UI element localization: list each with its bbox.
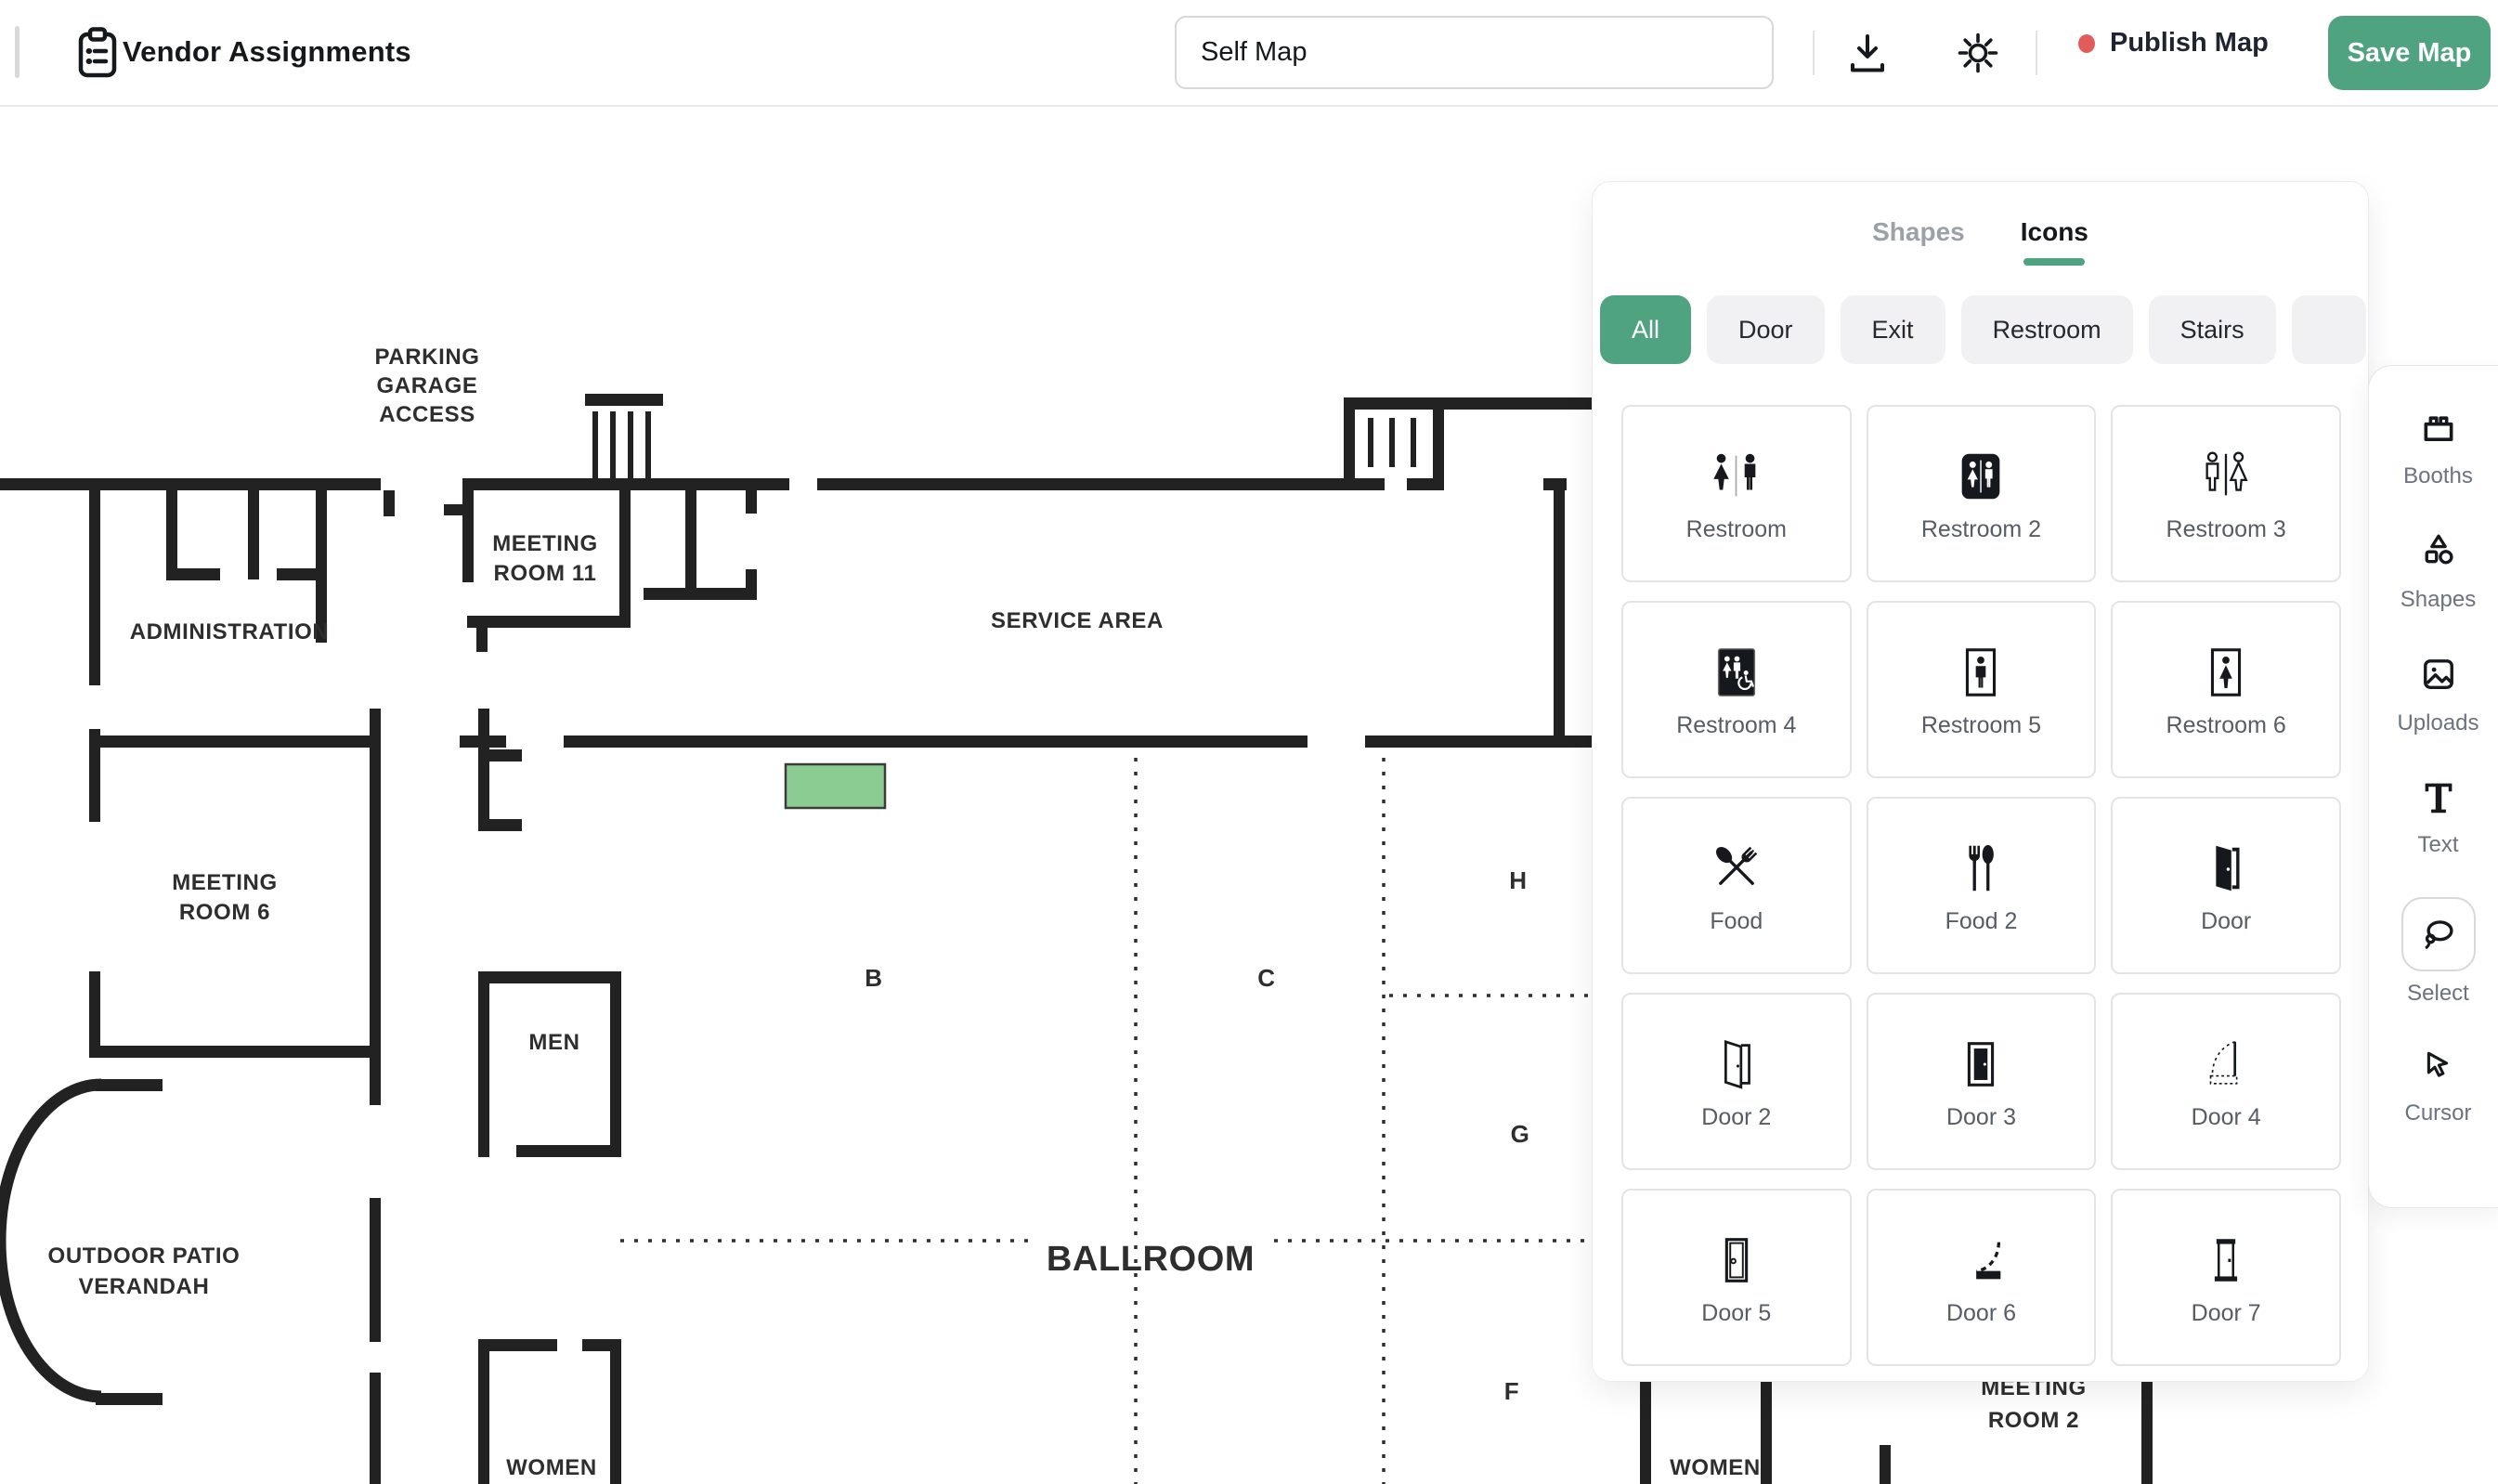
svg-text:C: C bbox=[1257, 964, 1275, 992]
icon-card-food[interactable]: Food bbox=[1621, 797, 1852, 974]
download-button[interactable] bbox=[1842, 28, 1893, 78]
svg-text:ADMINISTRATION: ADMINISTRATION bbox=[130, 619, 330, 644]
icon-card-restroom[interactable]: Restroom bbox=[1621, 405, 1852, 582]
restroom-5-icon bbox=[1952, 616, 2010, 701]
icon-card-restroom-2[interactable]: Restroom 2 bbox=[1867, 405, 2097, 582]
icon-card-food-2[interactable]: Food 2 bbox=[1867, 797, 2097, 974]
svg-text:ROOM 11: ROOM 11 bbox=[494, 561, 597, 586]
door-5-icon bbox=[1708, 1204, 1765, 1289]
filter-chip-restroom[interactable]: Restroom bbox=[1961, 295, 2133, 364]
svg-text:B: B bbox=[865, 964, 882, 992]
svg-text:WOMEN: WOMEN bbox=[506, 1455, 597, 1480]
tab-icons[interactable]: Icons bbox=[2021, 217, 2088, 266]
door-7-icon bbox=[2197, 1204, 2255, 1289]
lasso-select-icon bbox=[2416, 912, 2461, 957]
icon-card-door-6[interactable]: Door 6 bbox=[1867, 1189, 2097, 1366]
door-4-icon bbox=[2197, 1008, 2255, 1093]
page-title: Vendor Assignments bbox=[123, 35, 411, 69]
svg-text:WOMEN: WOMEN bbox=[1670, 1455, 1761, 1480]
download-icon bbox=[1847, 32, 1888, 74]
booth-rect[interactable] bbox=[786, 764, 885, 808]
svg-text:SERVICE AREA: SERVICE AREA bbox=[991, 608, 1164, 633]
svg-text:MEETING: MEETING bbox=[172, 870, 278, 895]
door-6-icon bbox=[1952, 1204, 2010, 1289]
text-icon bbox=[2417, 775, 2460, 823]
restroom-icon bbox=[1708, 420, 1765, 505]
restroom-3-icon bbox=[2197, 420, 2255, 505]
door-3-icon bbox=[1952, 1008, 2010, 1093]
header-divider bbox=[2036, 31, 2037, 75]
sidebar-item-uploads[interactable]: Uploads bbox=[2397, 652, 2478, 736]
icon-card-door-5[interactable]: Door 5 bbox=[1621, 1189, 1852, 1366]
tools-sidebar: Booths Shapes Uploads Text bbox=[2368, 365, 2498, 1208]
icon-card-restroom-3[interactable]: Restroom 3 bbox=[2111, 405, 2341, 582]
sidebar-item-text[interactable]: Text bbox=[2417, 775, 2460, 858]
filter-chip-door[interactable]: Door bbox=[1707, 295, 1825, 364]
top-bar: Vendor Assignments Publish Map Save Map bbox=[0, 0, 2498, 107]
sidebar-item-select[interactable]: Select bbox=[2401, 897, 2476, 1007]
filter-chip-exit[interactable]: Exit bbox=[1841, 295, 1945, 364]
icon-card-door-2[interactable]: Door 2 bbox=[1621, 993, 1852, 1170]
panel-tabs: Shapes Icons bbox=[1593, 217, 2368, 266]
left-edge-handle bbox=[15, 26, 20, 78]
section-dividers bbox=[620, 758, 1592, 1484]
food-2-icon bbox=[1952, 812, 2010, 897]
sidebar-item-cursor[interactable]: Cursor bbox=[2404, 1046, 2471, 1126]
booths-icon bbox=[2416, 407, 2461, 454]
sidebar-item-shapes[interactable]: Shapes bbox=[2400, 528, 2476, 613]
icon-card-restroom-6[interactable]: Restroom 6 bbox=[2111, 601, 2341, 778]
icon-card-door[interactable]: Door bbox=[2111, 797, 2341, 974]
svg-text:MEN: MEN bbox=[528, 1030, 579, 1055]
unpublished-status-dot bbox=[2078, 34, 2095, 53]
restroom-6-icon bbox=[2197, 616, 2255, 701]
patio-arc-wall bbox=[0, 1085, 101, 1397]
svg-text:ACCESS: ACCESS bbox=[379, 402, 475, 427]
svg-text:PARKING: PARKING bbox=[374, 345, 479, 370]
save-map-button[interactable]: Save Map bbox=[2328, 16, 2491, 90]
svg-text:G: G bbox=[1511, 1120, 1530, 1148]
settings-button[interactable] bbox=[1953, 28, 2003, 78]
sidebar-item-booths[interactable]: Booths bbox=[2403, 407, 2473, 489]
uploads-icon bbox=[2416, 652, 2461, 701]
cursor-icon bbox=[2417, 1046, 2458, 1091]
shapes-icon bbox=[2416, 528, 2461, 578]
icon-card-door-7[interactable]: Door 7 bbox=[2111, 1189, 2341, 1366]
food-icon bbox=[1707, 812, 1766, 897]
filter-chip-stairs[interactable]: Stairs bbox=[2149, 295, 2276, 364]
header-divider bbox=[1813, 31, 1815, 75]
clipboard-icon bbox=[74, 26, 121, 85]
svg-text:GARAGE: GARAGE bbox=[377, 373, 478, 398]
svg-text:ROOM 2: ROOM 2 bbox=[1988, 1408, 2079, 1433]
svg-text:F: F bbox=[1504, 1377, 1519, 1405]
door-2-icon bbox=[1708, 1008, 1765, 1093]
active-tab-underline bbox=[2023, 258, 2085, 266]
svg-text:MEETING: MEETING bbox=[492, 531, 598, 556]
shapes-icons-panel: Shapes Icons All Door Exit Restroom Stai… bbox=[1592, 181, 2369, 1382]
filter-chip-row: All Door Exit Restroom Stairs bbox=[1600, 295, 2368, 364]
filter-chip-all[interactable]: All bbox=[1600, 295, 1691, 364]
svg-text:ROOM 6: ROOM 6 bbox=[179, 900, 270, 925]
map-name-input[interactable] bbox=[1175, 16, 1774, 89]
publish-map-button[interactable]: Publish Map bbox=[2078, 28, 2269, 59]
restroom-4-icon bbox=[1708, 616, 1765, 701]
icon-grid: Restroom Restroom 2 Restr bbox=[1621, 405, 2341, 1366]
svg-text:OUTDOOR PATIO: OUTDOOR PATIO bbox=[48, 1243, 241, 1269]
icon-card-restroom-5[interactable]: Restroom 5 bbox=[1867, 601, 2097, 778]
svg-text:H: H bbox=[1509, 866, 1527, 894]
icon-card-restroom-4[interactable]: Restroom 4 bbox=[1621, 601, 1852, 778]
gear-icon bbox=[1956, 31, 2000, 75]
tab-shapes[interactable]: Shapes bbox=[1872, 217, 1965, 266]
svg-text:BALLROOM: BALLROOM bbox=[1047, 1240, 1255, 1279]
icon-card-door-4[interactable]: Door 4 bbox=[2111, 993, 2341, 1170]
filter-chip-partial[interactable] bbox=[2292, 295, 2366, 364]
door-icon bbox=[2197, 812, 2255, 897]
active-tool-frame bbox=[2401, 897, 2476, 971]
svg-text:VERANDAH: VERANDAH bbox=[79, 1274, 210, 1299]
restroom-2-icon bbox=[1952, 420, 2010, 505]
icon-card-door-3[interactable]: Door 3 bbox=[1867, 993, 2097, 1170]
